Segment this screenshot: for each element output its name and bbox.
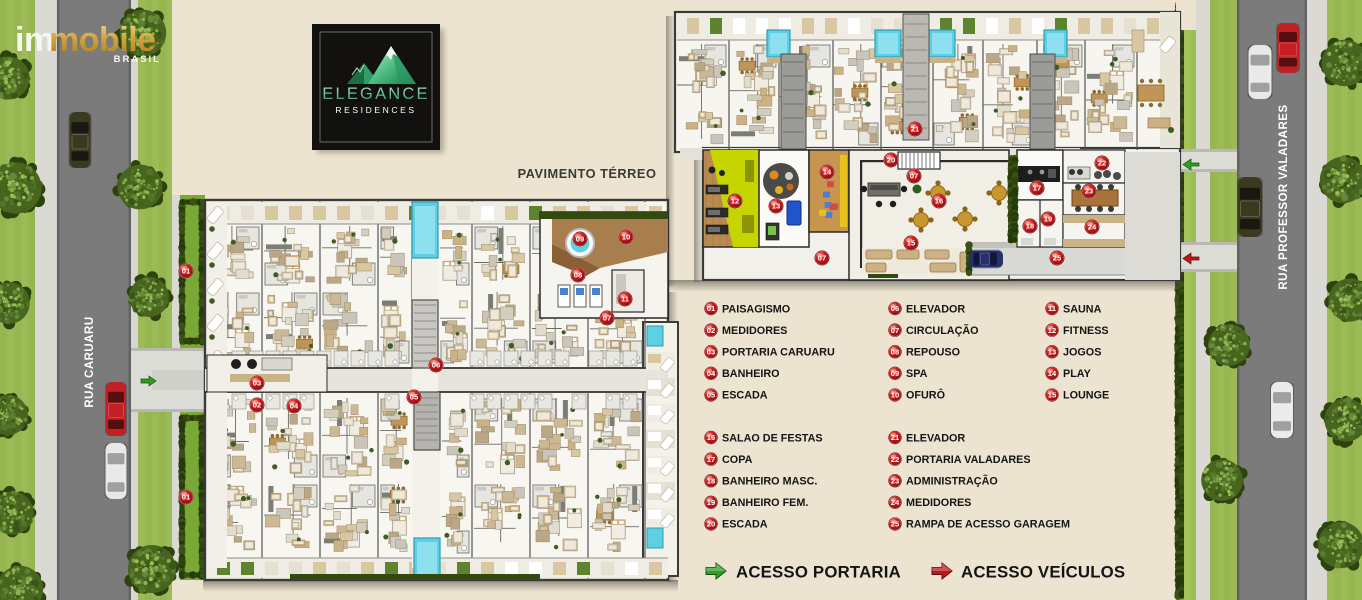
svg-text:03: 03: [253, 379, 261, 388]
svg-text:ACESSO VEÍCULOS: ACESSO VEÍCULOS: [961, 563, 1125, 582]
svg-text:25: 25: [891, 520, 900, 529]
svg-text:08: 08: [574, 271, 582, 280]
svg-text:ADMINISTRAÇÃO: ADMINISTRAÇÃO: [906, 475, 998, 488]
svg-text:22: 22: [1098, 159, 1106, 168]
svg-text:ESCADA: ESCADA: [722, 519, 768, 531]
svg-text:19: 19: [1044, 215, 1052, 224]
svg-text:23: 23: [1085, 187, 1093, 196]
svg-text:BRASIL: BRASIL: [114, 54, 161, 65]
svg-text:RUA CARUARU: RUA CARUARU: [84, 316, 96, 407]
svg-text:PLAY: PLAY: [1063, 368, 1092, 380]
svg-text:04: 04: [290, 402, 299, 411]
svg-text:01: 01: [182, 493, 191, 502]
svg-text:20: 20: [887, 156, 895, 165]
svg-text:17: 17: [1033, 184, 1041, 193]
svg-text:ACESSO PORTARIA: ACESSO PORTARIA: [736, 563, 901, 582]
svg-text:24: 24: [1088, 223, 1097, 232]
svg-text:09: 09: [891, 369, 899, 378]
svg-text:MEDIDORES: MEDIDORES: [722, 325, 787, 337]
svg-text:05: 05: [707, 391, 716, 400]
svg-text:ESCADA: ESCADA: [722, 390, 768, 402]
svg-text:BANHEIRO: BANHEIRO: [722, 368, 780, 380]
svg-text:02: 02: [707, 326, 715, 335]
svg-text:PAISAGISMO: PAISAGISMO: [722, 303, 790, 315]
svg-text:10: 10: [622, 233, 630, 242]
svg-text:20: 20: [707, 520, 715, 529]
svg-text:OFURÔ: OFURÔ: [906, 389, 945, 402]
svg-text:RESIDENCES: RESIDENCES: [335, 105, 416, 115]
svg-text:10: 10: [891, 391, 899, 400]
svg-text:CIRCULAÇÃO: CIRCULAÇÃO: [906, 324, 979, 337]
svg-text:12: 12: [1048, 326, 1056, 335]
svg-text:07: 07: [891, 326, 899, 335]
svg-text:17: 17: [707, 455, 715, 464]
svg-text:06: 06: [891, 304, 899, 313]
svg-text:15: 15: [907, 239, 916, 248]
svg-text:14: 14: [1048, 369, 1057, 378]
svg-text:01: 01: [707, 304, 716, 313]
svg-text:11: 11: [1048, 304, 1057, 313]
svg-text:BANHEIRO FEM.: BANHEIRO FEM.: [722, 497, 808, 509]
svg-text:02: 02: [253, 401, 261, 410]
svg-text:07: 07: [603, 314, 611, 323]
svg-text:03: 03: [707, 347, 715, 356]
svg-text:23: 23: [891, 476, 899, 485]
svg-text:RUA PROFESSOR VALADARES: RUA PROFESSOR VALADARES: [1278, 104, 1290, 289]
svg-text:PAVIMENTO TÉRREO: PAVIMENTO TÉRREO: [518, 166, 657, 181]
svg-text:COPA: COPA: [722, 454, 753, 466]
svg-text:01: 01: [182, 267, 191, 276]
svg-text:REPOUSO: REPOUSO: [906, 347, 960, 359]
svg-text:RAMPA DE ACESSO GARAGEM: RAMPA DE ACESSO GARAGEM: [906, 519, 1070, 531]
svg-text:09: 09: [576, 235, 584, 244]
svg-text:SALAO DE FESTAS: SALAO DE FESTAS: [722, 432, 823, 444]
svg-text:22: 22: [891, 455, 899, 464]
svg-text:12: 12: [731, 197, 739, 206]
svg-text:16: 16: [707, 433, 715, 442]
svg-text:06: 06: [432, 361, 440, 370]
svg-text:07: 07: [818, 254, 826, 263]
svg-text:14: 14: [823, 168, 832, 177]
svg-text:PORTARIA CARUARU: PORTARIA CARUARU: [722, 347, 835, 359]
svg-text:04: 04: [707, 369, 716, 378]
svg-text:18: 18: [1026, 222, 1034, 231]
svg-text:21: 21: [891, 433, 900, 442]
svg-text:ELEVADOR: ELEVADOR: [906, 303, 965, 315]
svg-text:13: 13: [1048, 347, 1056, 356]
svg-text:13: 13: [772, 202, 780, 211]
svg-text:SAUNA: SAUNA: [1063, 303, 1102, 315]
svg-text:25: 25: [1053, 254, 1062, 263]
svg-text:11: 11: [621, 295, 630, 304]
svg-text:19: 19: [707, 498, 715, 507]
svg-text:24: 24: [891, 498, 900, 507]
svg-text:15: 15: [1048, 391, 1057, 400]
svg-text:16: 16: [935, 197, 943, 206]
svg-text:PORTARIA VALADARES: PORTARIA VALADARES: [906, 454, 1031, 466]
svg-text:ELEVADOR: ELEVADOR: [906, 432, 965, 444]
svg-text:08: 08: [891, 347, 899, 356]
svg-text:ELEGANCE: ELEGANCE: [322, 85, 429, 103]
svg-text:05: 05: [410, 393, 419, 402]
svg-text:MEDIDORES: MEDIDORES: [906, 497, 971, 509]
svg-text:JOGOS: JOGOS: [1063, 347, 1101, 359]
svg-text:im: im: [15, 21, 54, 59]
svg-text:FITNESS: FITNESS: [1063, 325, 1109, 337]
svg-text:07: 07: [910, 172, 918, 181]
svg-text:LOUNGE: LOUNGE: [1063, 390, 1109, 402]
svg-text:18: 18: [707, 476, 715, 485]
svg-text:21: 21: [911, 125, 920, 134]
svg-text:BANHEIRO MASC.: BANHEIRO MASC.: [722, 476, 817, 488]
svg-text:SPA: SPA: [906, 368, 928, 380]
